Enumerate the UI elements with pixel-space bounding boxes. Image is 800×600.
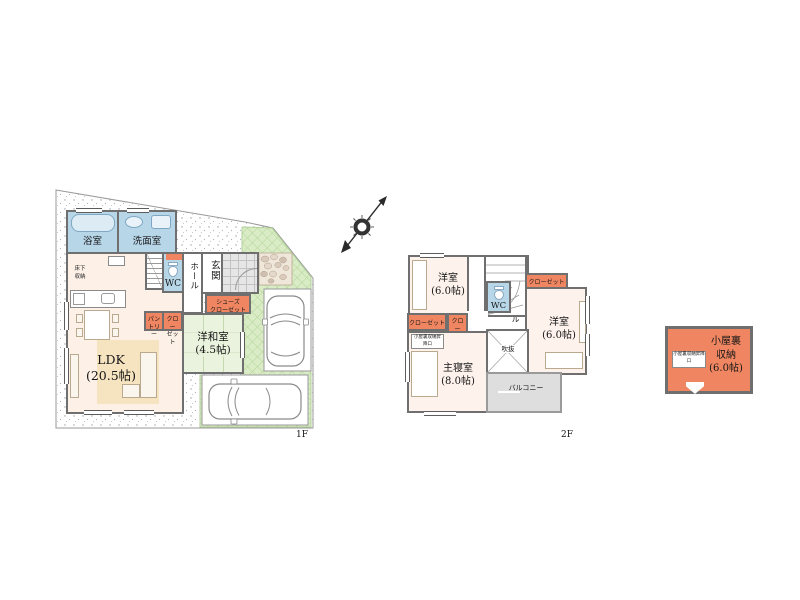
attic-storage-label: 小屋裏 収納 (6.0帖) — [700, 335, 752, 376]
window — [585, 334, 590, 356]
attic-storage: 小屋裏 収納 (6.0帖) 小屋裏収納昇降口 — [665, 326, 753, 394]
ldk-label: LDK (20.5帖) — [74, 352, 148, 383]
void-label: 吹抜 — [496, 345, 520, 353]
dresser — [545, 352, 583, 369]
master-bedroom-label: 主寝室 (8.0帖) — [429, 363, 487, 388]
window — [585, 296, 590, 324]
stone-path — [259, 253, 292, 285]
bedroom1-label: 洋室 (6.0帖) — [426, 273, 470, 298]
car-icon-2 — [209, 379, 301, 424]
compass-icon — [341, 196, 387, 253]
window — [240, 332, 245, 358]
window — [420, 253, 444, 258]
washroom-label: 洗面室 — [119, 236, 175, 248]
car-icon-1 — [263, 296, 309, 366]
pantry: パン トリー — [144, 311, 164, 331]
hall-1f: ホール — [182, 252, 203, 314]
kitchen-counter — [70, 290, 126, 308]
chair — [76, 314, 83, 323]
washbasin-icon — [151, 215, 171, 229]
window — [124, 410, 154, 415]
entrance: 玄関 — [201, 252, 223, 294]
toilet-icon — [168, 266, 178, 277]
void-area: 吹抜 — [486, 329, 529, 374]
sofa-chaise — [122, 384, 140, 398]
wc-counter — [166, 254, 182, 260]
hall-1f-label: ホール — [188, 262, 199, 291]
counter — [108, 256, 125, 266]
bed — [412, 260, 427, 310]
bedroom2-label: 洋室 (6.0帖) — [535, 317, 583, 342]
window — [127, 208, 149, 213]
balcony-label: バルコニー — [496, 384, 556, 393]
dining-table — [84, 310, 110, 340]
basin-bowl-icon — [125, 216, 143, 228]
floor1-label: 1F — [292, 430, 312, 441]
room-bedroom1: 洋室 (6.0帖) — [408, 255, 469, 317]
tatami-room-label: 洋和室 (4.5帖) — [184, 331, 242, 357]
attic-ladder-notch — [686, 382, 704, 394]
chair — [76, 328, 83, 337]
room-bathroom: 浴室 — [66, 210, 119, 254]
stove-icon — [73, 293, 85, 305]
attic-hatch-label-2f: 小屋裏収納昇降口 — [411, 334, 444, 349]
closet-2f-left: クローゼット — [407, 313, 447, 331]
room-wc-2f: WC — [486, 281, 511, 313]
window — [64, 348, 69, 384]
underfloor-storage-label: 床下 収納 — [70, 266, 90, 281]
floor-plan-canvas: 浴室 洗面室 床下 収納 LDK (20.5帖) — [0, 0, 800, 600]
entrance-label: 玄関 — [208, 260, 220, 281]
chair — [112, 314, 119, 323]
floor2-label: 2F — [557, 430, 577, 441]
wc-2f-label: WC — [488, 301, 509, 312]
window — [405, 352, 410, 382]
room-washroom: 洗面室 — [117, 210, 177, 254]
room-bedroom2: 洋室 (6.0帖) — [525, 287, 587, 375]
balcony: バルコニー — [486, 372, 562, 413]
room-wc-1f: WC — [162, 252, 184, 293]
bathtub-icon — [71, 214, 115, 232]
shoes-closet: シューズ クローゼット — [205, 294, 251, 314]
window — [424, 411, 456, 416]
window — [76, 208, 102, 213]
closet-1f: クロー ゼット — [162, 311, 183, 331]
wc-1f-label: WC — [164, 279, 182, 290]
window — [64, 302, 69, 330]
attic-hatch-label: 小屋裏収納昇降口 — [672, 351, 706, 368]
bathroom-label: 浴室 — [68, 236, 117, 248]
room-tatami: 洋和室 (4.5帖) — [182, 313, 244, 374]
chair — [112, 328, 119, 337]
entrance-door-arc — [235, 268, 257, 290]
window — [84, 410, 112, 415]
sink-icon — [101, 293, 115, 304]
toilet-icon — [494, 290, 504, 300]
landing-2f — [466, 311, 488, 333]
entrance-tiles — [221, 252, 259, 294]
